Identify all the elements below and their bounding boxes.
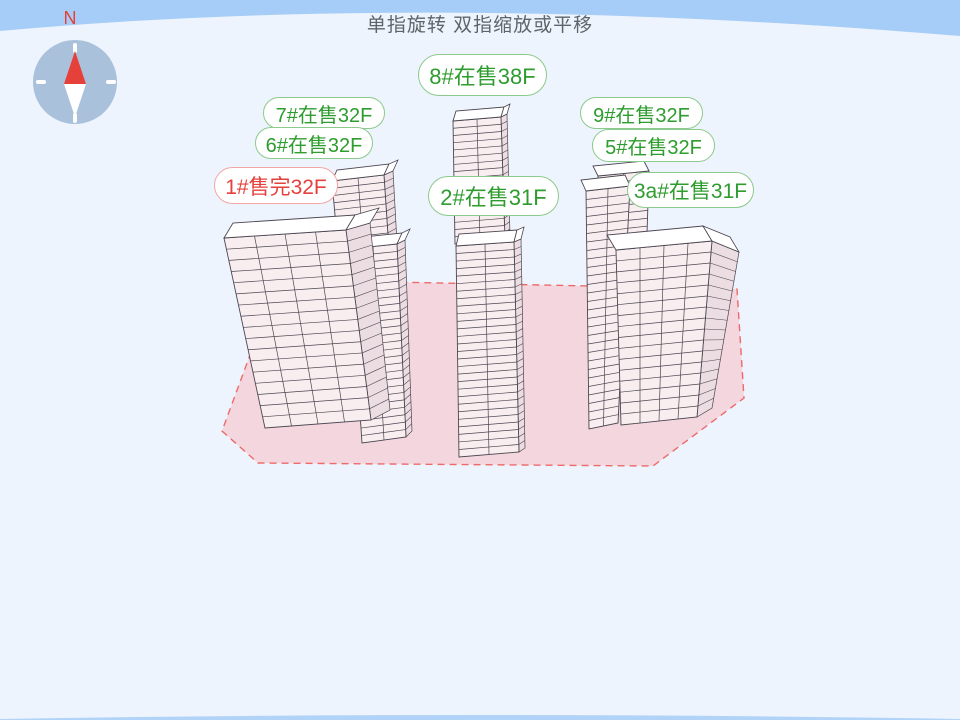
building-label-2[interactable]: 2#在售31F bbox=[428, 176, 559, 216]
building-label-1[interactable]: 1#售完32F bbox=[214, 167, 338, 204]
gesture-hint: 单指旋转 双指缩放或平移 bbox=[0, 10, 960, 37]
building-label-9[interactable]: 9#在售32F bbox=[580, 97, 703, 129]
building-label-6[interactable]: 6#在售32F bbox=[255, 127, 373, 159]
building-8-tower[interactable] bbox=[453, 104, 510, 244]
building-label-7[interactable]: 7#在售32F bbox=[263, 97, 385, 129]
map-canvas[interactable]: N 单指旋转 双指缩放或平移 7#在售32F 6#在售32F 1#售完32F 8… bbox=[0, 0, 960, 720]
building-label-8[interactable]: 8#在售38F bbox=[418, 54, 547, 96]
building-label-5[interactable]: 5#在售32F bbox=[592, 129, 715, 162]
compass-tick bbox=[36, 80, 46, 84]
scene-3d-view: N bbox=[0, 0, 960, 720]
building-2-tower[interactable] bbox=[456, 227, 525, 457]
building-label-3a[interactable]: 3a#在售31F bbox=[627, 172, 754, 208]
compass-tick bbox=[106, 80, 116, 84]
